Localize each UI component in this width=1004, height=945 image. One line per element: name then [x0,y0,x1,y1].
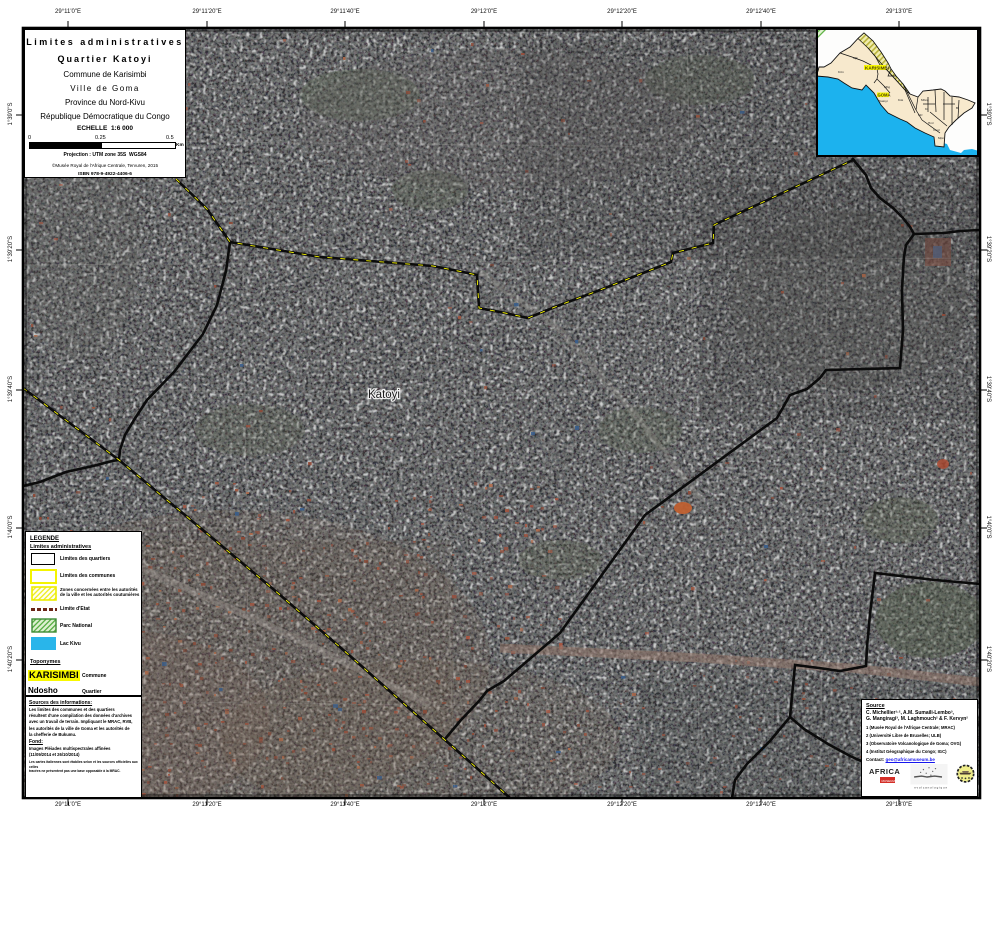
svg-text:Bj: Bj [956,106,959,110]
svg-text:Mpn: Mpn [938,136,944,140]
svg-text:GOMA: GOMA [878,93,891,98]
svg-text:Hml: Hml [928,121,934,125]
svg-text:Mbng: Mbng [921,98,929,102]
svg-text:Mjk: Mjk [853,56,858,60]
svg-text:Krtn: Krtn [838,70,844,74]
svg-text:Mbg: Mbg [884,85,890,89]
svg-text:Katoyi: Katoyi [879,99,888,103]
svg-text:Mrr: Mrr [918,113,923,117]
svg-text:Kt: Kt [925,107,928,111]
svg-text:Vrnd: Vrnd [933,128,940,132]
svg-text:n v o l c a n o l o g i q u e: n v o l c a n o l o g i q u e [914,786,947,790]
svg-text:Katoyi: Katoyi [368,389,400,401]
svg-text:KARISIMBI: KARISIMBI [865,65,889,70]
svg-text:Ksk: Ksk [898,98,904,102]
